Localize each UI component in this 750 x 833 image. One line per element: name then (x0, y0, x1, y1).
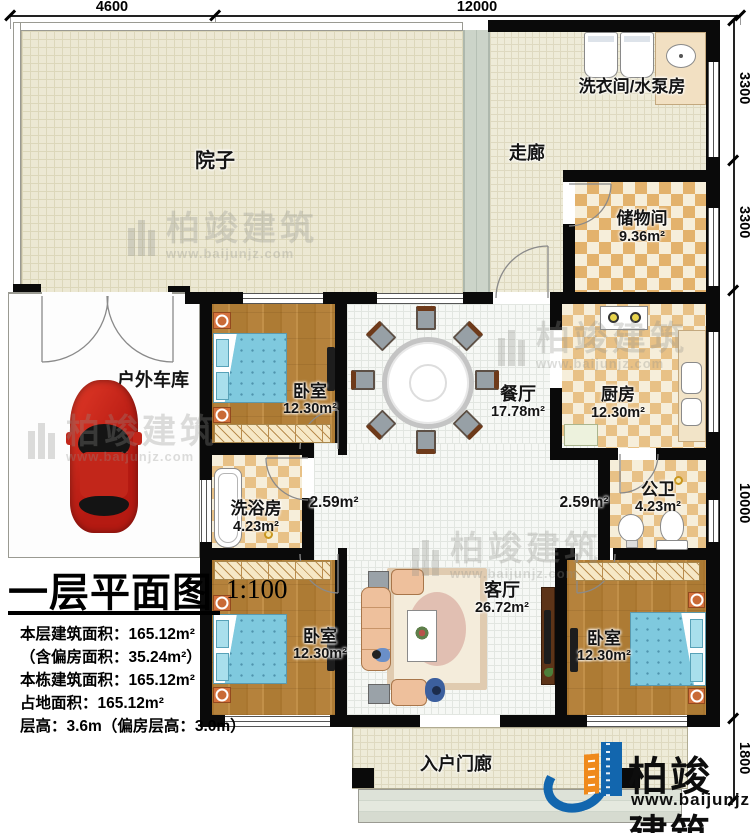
hall-left-area: 2.59m² (309, 495, 358, 511)
dim-right-2: 3300 (736, 206, 750, 238)
person-head (432, 686, 441, 695)
dim-line-top (10, 15, 740, 17)
wall (212, 548, 302, 560)
storage-wall-left (563, 224, 575, 292)
pillow (690, 619, 703, 648)
table-flowers (415, 625, 429, 641)
room-area-bedroom1: 12.30m² (283, 402, 337, 417)
kitchen-sink (681, 362, 702, 394)
sink-drain (679, 54, 683, 58)
wall (338, 548, 347, 560)
bed (213, 333, 287, 403)
chair (416, 306, 436, 330)
wall-left (200, 292, 212, 480)
room-label-bedroom3: 卧室 (587, 630, 621, 648)
plan-title: 一层平面图 (8, 560, 213, 618)
burner (608, 312, 619, 323)
room-area-bedroom2: 12.30m² (293, 647, 347, 662)
yard-wall-left (13, 22, 21, 292)
room-area-wc: 4.23m² (635, 500, 681, 515)
wall (555, 548, 575, 560)
wall (550, 388, 562, 448)
car-roof (80, 452, 128, 498)
window (243, 293, 323, 304)
room-label-wc: 公卫 (641, 481, 675, 499)
window (708, 208, 719, 286)
kitchen-appliance (564, 424, 598, 446)
wall (338, 443, 347, 455)
yard-floor (21, 30, 465, 294)
room-area-living: 26.72m² (475, 601, 529, 616)
room-label-laundry: 洗衣间/水泵房 (579, 78, 686, 96)
washing-machine (584, 32, 618, 78)
room-label-corridor: 走廊 (509, 144, 545, 163)
armchair (391, 679, 427, 706)
wall (212, 443, 302, 455)
pillow (216, 339, 229, 367)
pillow (216, 372, 229, 400)
dim-right-3: 10000 (736, 483, 750, 523)
wall (687, 715, 720, 727)
window (587, 716, 687, 727)
dim-top-right: 12000 (457, 0, 497, 15)
floor-plan-canvas: 4600 12000 3300 3300 10000 1800 院子 走廊 洗衣… (0, 0, 750, 833)
wall (610, 448, 618, 460)
chair (351, 370, 375, 390)
dim-ext (10, 15, 11, 29)
floor-drain (674, 476, 683, 485)
nightstand (688, 688, 705, 704)
tv (327, 347, 335, 391)
wc-sink-pedestal (626, 540, 638, 548)
room-area-bedroom3: 12.30m² (577, 649, 631, 664)
dining-table-center (409, 364, 447, 402)
wall (463, 292, 493, 304)
stat-line: 占地面积：165.12m² (20, 691, 164, 713)
kitchen-sink (681, 398, 702, 426)
nightstand (213, 407, 231, 423)
chair (416, 430, 436, 454)
wall (550, 304, 562, 330)
plan-scale: 1:100 (226, 574, 288, 605)
walkway-strip (463, 30, 490, 292)
room-label-bedroom2: 卧室 (303, 628, 337, 646)
tv (544, 610, 551, 664)
room-area-dining: 17.78m² (491, 405, 545, 420)
room-label-storage: 储物间 (617, 210, 668, 228)
bed (213, 614, 287, 684)
wall (656, 448, 720, 460)
room-area-bath: 4.23m² (233, 520, 279, 535)
car-mirror (66, 432, 75, 445)
room-label-dining: 餐厅 (500, 385, 536, 404)
storage-wall-top (563, 170, 706, 182)
logo-site: www.baijunjz.com (631, 790, 750, 810)
dim-top-left: 4600 (96, 0, 128, 15)
yard-wall-top (13, 22, 463, 31)
toilet-tank (656, 540, 688, 550)
wall (500, 715, 587, 727)
wall (330, 715, 420, 727)
car-mirror (133, 432, 142, 445)
dim-right-1: 3300 (736, 72, 750, 104)
window (201, 480, 212, 542)
person-head (372, 650, 381, 659)
armchair (391, 569, 424, 595)
hall-right-area: 2.59m² (559, 495, 608, 511)
nightstand (213, 312, 231, 329)
coffee-table (407, 610, 437, 662)
garage-wall-top-left (8, 292, 42, 294)
room-area-storage: 9.36m² (619, 230, 665, 245)
wall (555, 560, 567, 715)
wall (335, 304, 347, 443)
chair (475, 370, 499, 390)
window (708, 332, 719, 432)
room-label-bath: 洗浴房 (231, 500, 282, 518)
wardrobe (214, 424, 331, 443)
washing-machine (620, 32, 654, 78)
pillow (216, 653, 229, 681)
window (708, 62, 719, 157)
pier (352, 768, 374, 788)
stat-line: （含偏房面积：35.24m²） (20, 645, 202, 667)
title-rule (8, 611, 220, 615)
side-table (368, 684, 390, 704)
dim-line-right (733, 20, 735, 800)
room-area-kitchen: 12.30m² (591, 406, 645, 421)
nightstand (688, 592, 705, 608)
room-label-porch: 入户门廊 (420, 755, 492, 774)
wall (302, 443, 314, 458)
room-label-kitchen: 厨房 (601, 386, 635, 404)
wardrobe (575, 562, 700, 581)
wall (323, 292, 377, 304)
nightstand (213, 687, 231, 703)
walkway-line (476, 30, 477, 292)
room-label-yard: 院子 (195, 151, 235, 172)
pillow (690, 653, 703, 682)
logo-name: 柏竣建筑 (628, 744, 750, 833)
logo-building-blue-icon (601, 742, 622, 796)
bed (630, 612, 706, 686)
logo-building-orange-icon (584, 753, 599, 794)
window (377, 293, 463, 304)
wall (185, 292, 243, 304)
burner (630, 312, 641, 323)
car (70, 380, 138, 533)
wall (550, 292, 720, 304)
stat-line: 层高：3.6m（偏房层高：3.0m） (20, 714, 246, 736)
stat-line: 本层建筑面积：165.12m² (20, 622, 195, 644)
window (708, 500, 719, 542)
wall-top-wing (488, 20, 720, 32)
plant (544, 668, 553, 677)
room-label-living: 客厅 (484, 581, 520, 600)
room-label-bedroom1: 卧室 (293, 383, 327, 401)
pillow (216, 620, 229, 648)
stat-line: 本栋建筑面积：165.12m² (20, 668, 195, 690)
corridor-floor-lower (490, 170, 563, 292)
wc-sink (618, 514, 644, 542)
